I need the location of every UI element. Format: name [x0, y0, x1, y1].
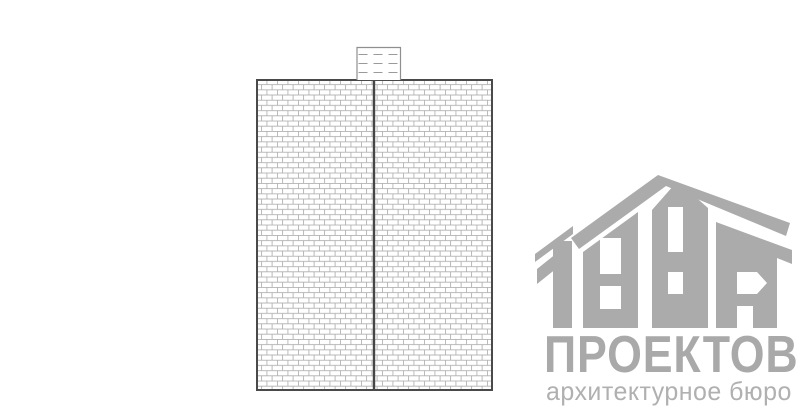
canvas: ПРОЕКТОВ архитектурное бюро	[0, 0, 800, 418]
logo-window-cut	[668, 207, 683, 252]
logo-window-cut	[600, 286, 621, 309]
logo-digit-1-stem	[553, 241, 572, 328]
logo-name: ПРОЕКТОВ	[544, 329, 764, 381]
logo-house-1000-icon	[535, 172, 800, 332]
logo-window-cut	[668, 272, 683, 294]
wall-right-half	[374, 80, 492, 390]
wall-left-half	[257, 80, 374, 390]
logo-window-cut	[737, 306, 753, 328]
logo-tagline: архитектурное бюро	[546, 377, 786, 406]
brick-wall-elevation	[256, 79, 493, 391]
chimney	[356, 46, 402, 80]
logo-window-cut	[600, 238, 621, 274]
logo-digit-0b	[652, 185, 708, 328]
